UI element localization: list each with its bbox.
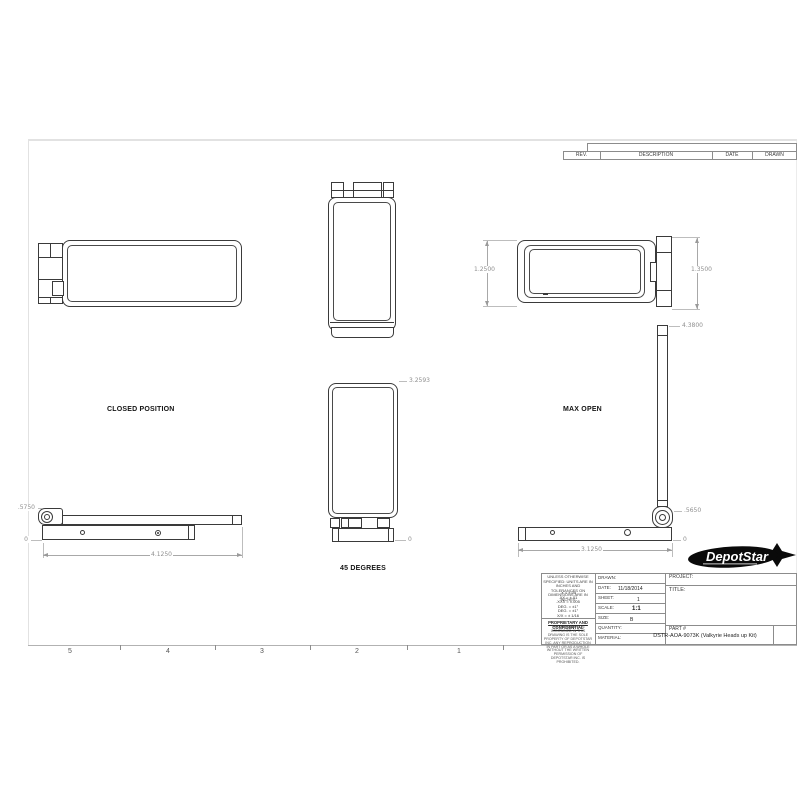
deg45-hinge-tab-middle <box>341 518 362 528</box>
hinge-knuckle-line <box>656 290 672 291</box>
dim-arrow-up <box>695 238 699 243</box>
dim-arrow-left <box>43 553 48 557</box>
leader-line <box>38 508 42 509</box>
deg45-base-bar <box>332 528 394 542</box>
dim-open-length: 3.1250 <box>580 546 603 553</box>
zone-number: 2 <box>351 648 363 655</box>
extension-line <box>672 543 673 557</box>
field-row-line <box>595 613 665 614</box>
base-end-cap-line <box>388 528 389 542</box>
base-hole <box>550 530 555 535</box>
zone-tick <box>407 645 408 650</box>
title-label: TITLE: <box>669 588 686 593</box>
hinge-tab <box>52 281 64 296</box>
size-value: B <box>630 617 633 623</box>
sheet-value: 1 <box>637 597 640 603</box>
scale-label: SCALE: <box>598 605 614 610</box>
date-value: 11/18/2014 <box>618 586 643 592</box>
hinge-detail-line <box>348 518 349 528</box>
hinge-pivot-inner <box>44 514 50 520</box>
base-end-cap-line <box>338 528 339 542</box>
hinge-knuckle-line <box>38 257 63 258</box>
dim-end-left: 1.2500 <box>473 266 496 273</box>
part-number-label: PART # <box>669 627 686 632</box>
hinge-tab <box>650 262 657 282</box>
open-lid-bar <box>657 325 668 507</box>
project-label: PROJECT: <box>669 575 693 580</box>
rev-header-rev: REV. <box>563 152 600 159</box>
zone-tick <box>310 645 311 650</box>
material-label: MATERIAL: <box>598 635 621 640</box>
closed-position-label: CLOSED POSITION <box>107 406 175 413</box>
zone-number: 3 <box>256 648 268 655</box>
rev-header-date: DATE <box>712 152 752 159</box>
base-step-line <box>188 525 189 540</box>
front-base-cap <box>331 327 394 338</box>
base-hole-center <box>157 532 159 534</box>
dim-deg45-zero: 0 <box>407 536 413 543</box>
drawn-label: DRAWN: <box>598 575 616 580</box>
quantity-label: QUANTITY: <box>598 625 622 630</box>
project-row-line <box>665 585 797 586</box>
lid-hinge-line <box>657 500 668 501</box>
hinge-detail-line <box>50 297 51 304</box>
dimension-line <box>697 238 698 309</box>
field-row-line <box>595 593 665 594</box>
end-view-inner-edge2 <box>529 249 641 294</box>
sheet-label: SHEET: <box>598 595 614 600</box>
zone-number: 1 <box>453 648 465 655</box>
hinge-detail-line <box>50 243 51 257</box>
rev-header-description: DESCRIPTION <box>600 152 712 159</box>
front-bottom-line <box>330 322 394 323</box>
field-row-line <box>595 603 665 604</box>
zone-tick <box>503 645 504 650</box>
deg45-label: 45 DEGREES <box>330 565 396 572</box>
hinge-pivot-inner <box>659 514 666 521</box>
dim-arrow-left <box>518 548 523 552</box>
dim-closed-length: 4.1250 <box>150 551 173 558</box>
proprietary-text: THE INFORMATION CONTAINED IN THIS DRAWIN… <box>543 626 593 665</box>
dim-arrow-right <box>237 553 242 557</box>
base-hole <box>80 530 85 535</box>
zone-number: 5 <box>64 648 76 655</box>
dim-arrow-down <box>695 304 699 309</box>
zone-tick <box>120 645 121 650</box>
deg45-body-inner-edge <box>332 387 394 514</box>
dim-closed-height: .5750 <box>14 504 36 511</box>
deg45-hinge-tab-right <box>377 518 390 528</box>
zone-number: 4 <box>162 648 174 655</box>
leader-line <box>31 540 42 541</box>
leader-line <box>669 326 680 327</box>
part-number-value: DSTR-AOA-9073K (Valkyrie Heads up Kit) <box>620 633 790 639</box>
dim-open-hinge: .5650 <box>683 507 702 514</box>
open-base-bar <box>518 527 672 541</box>
rev-header-drawn: DRAWN <box>752 152 797 159</box>
deg45-hinge-tab-left <box>330 518 340 528</box>
depotstar-logo-graphic: DepotStar <box>687 542 797 572</box>
depotstar-logo: DepotStar <box>687 542 797 572</box>
max-open-label: MAX OPEN <box>563 406 602 413</box>
zone-tick <box>215 645 216 650</box>
logo-text: DepotStar <box>706 549 769 564</box>
end-view-detail-mark <box>543 293 548 295</box>
leader-line <box>399 381 407 382</box>
tolerance-list: .X = ±.05 .XX = ±.01 .XXX = ±.005 DEG. =… <box>542 591 594 619</box>
hinge-knuckle-line <box>38 279 63 280</box>
lid-end-cap-line <box>232 515 233 525</box>
dim-arrow-right <box>667 548 672 552</box>
dim-end-right: 1.3500 <box>690 266 713 273</box>
leader-line <box>674 511 682 512</box>
sheet-border-bottom <box>28 645 797 646</box>
size-label: SIZE: <box>598 615 609 620</box>
dim-arrow-down <box>485 301 489 306</box>
sheet-border-top <box>28 139 797 141</box>
lid-end-cap-line <box>657 335 668 336</box>
leader-line <box>673 540 681 541</box>
tolerance-line: X/X = ± 1/16 <box>542 614 594 619</box>
front-body-inner-edge <box>333 202 391 321</box>
dimension-line <box>43 555 242 556</box>
drawing-sheet: 5 4 3 2 1 REV. DESCRIPTION DATE DRAWN 1.… <box>0 0 800 800</box>
hinge-knuckle-line <box>656 252 672 253</box>
dim-closed-zero: 0 <box>21 536 29 543</box>
dimension-line <box>487 241 488 306</box>
field-row-line <box>595 623 665 624</box>
end-view-hinge <box>656 236 672 307</box>
closed-side-lid-bar <box>55 515 242 525</box>
leader-line <box>395 540 406 541</box>
base-end-cap-line <box>525 527 526 541</box>
extension-line <box>483 306 517 307</box>
date-label: DATE: <box>598 585 611 590</box>
base-hole <box>624 529 631 536</box>
extension-line <box>242 527 243 558</box>
dim-open-height: 4.3800 <box>681 322 704 329</box>
closed-side-base-bar <box>42 525 195 540</box>
dim-deg45-height: 3.2593 <box>408 377 431 384</box>
front-hinge-line <box>331 190 394 191</box>
closed-top-inner-edge <box>67 245 237 302</box>
sheet-border-left <box>28 141 29 645</box>
field-row-line <box>595 583 665 584</box>
extension-line <box>672 309 700 310</box>
dim-arrow-up <box>485 241 489 246</box>
scale-value: 1:1 <box>632 606 641 612</box>
